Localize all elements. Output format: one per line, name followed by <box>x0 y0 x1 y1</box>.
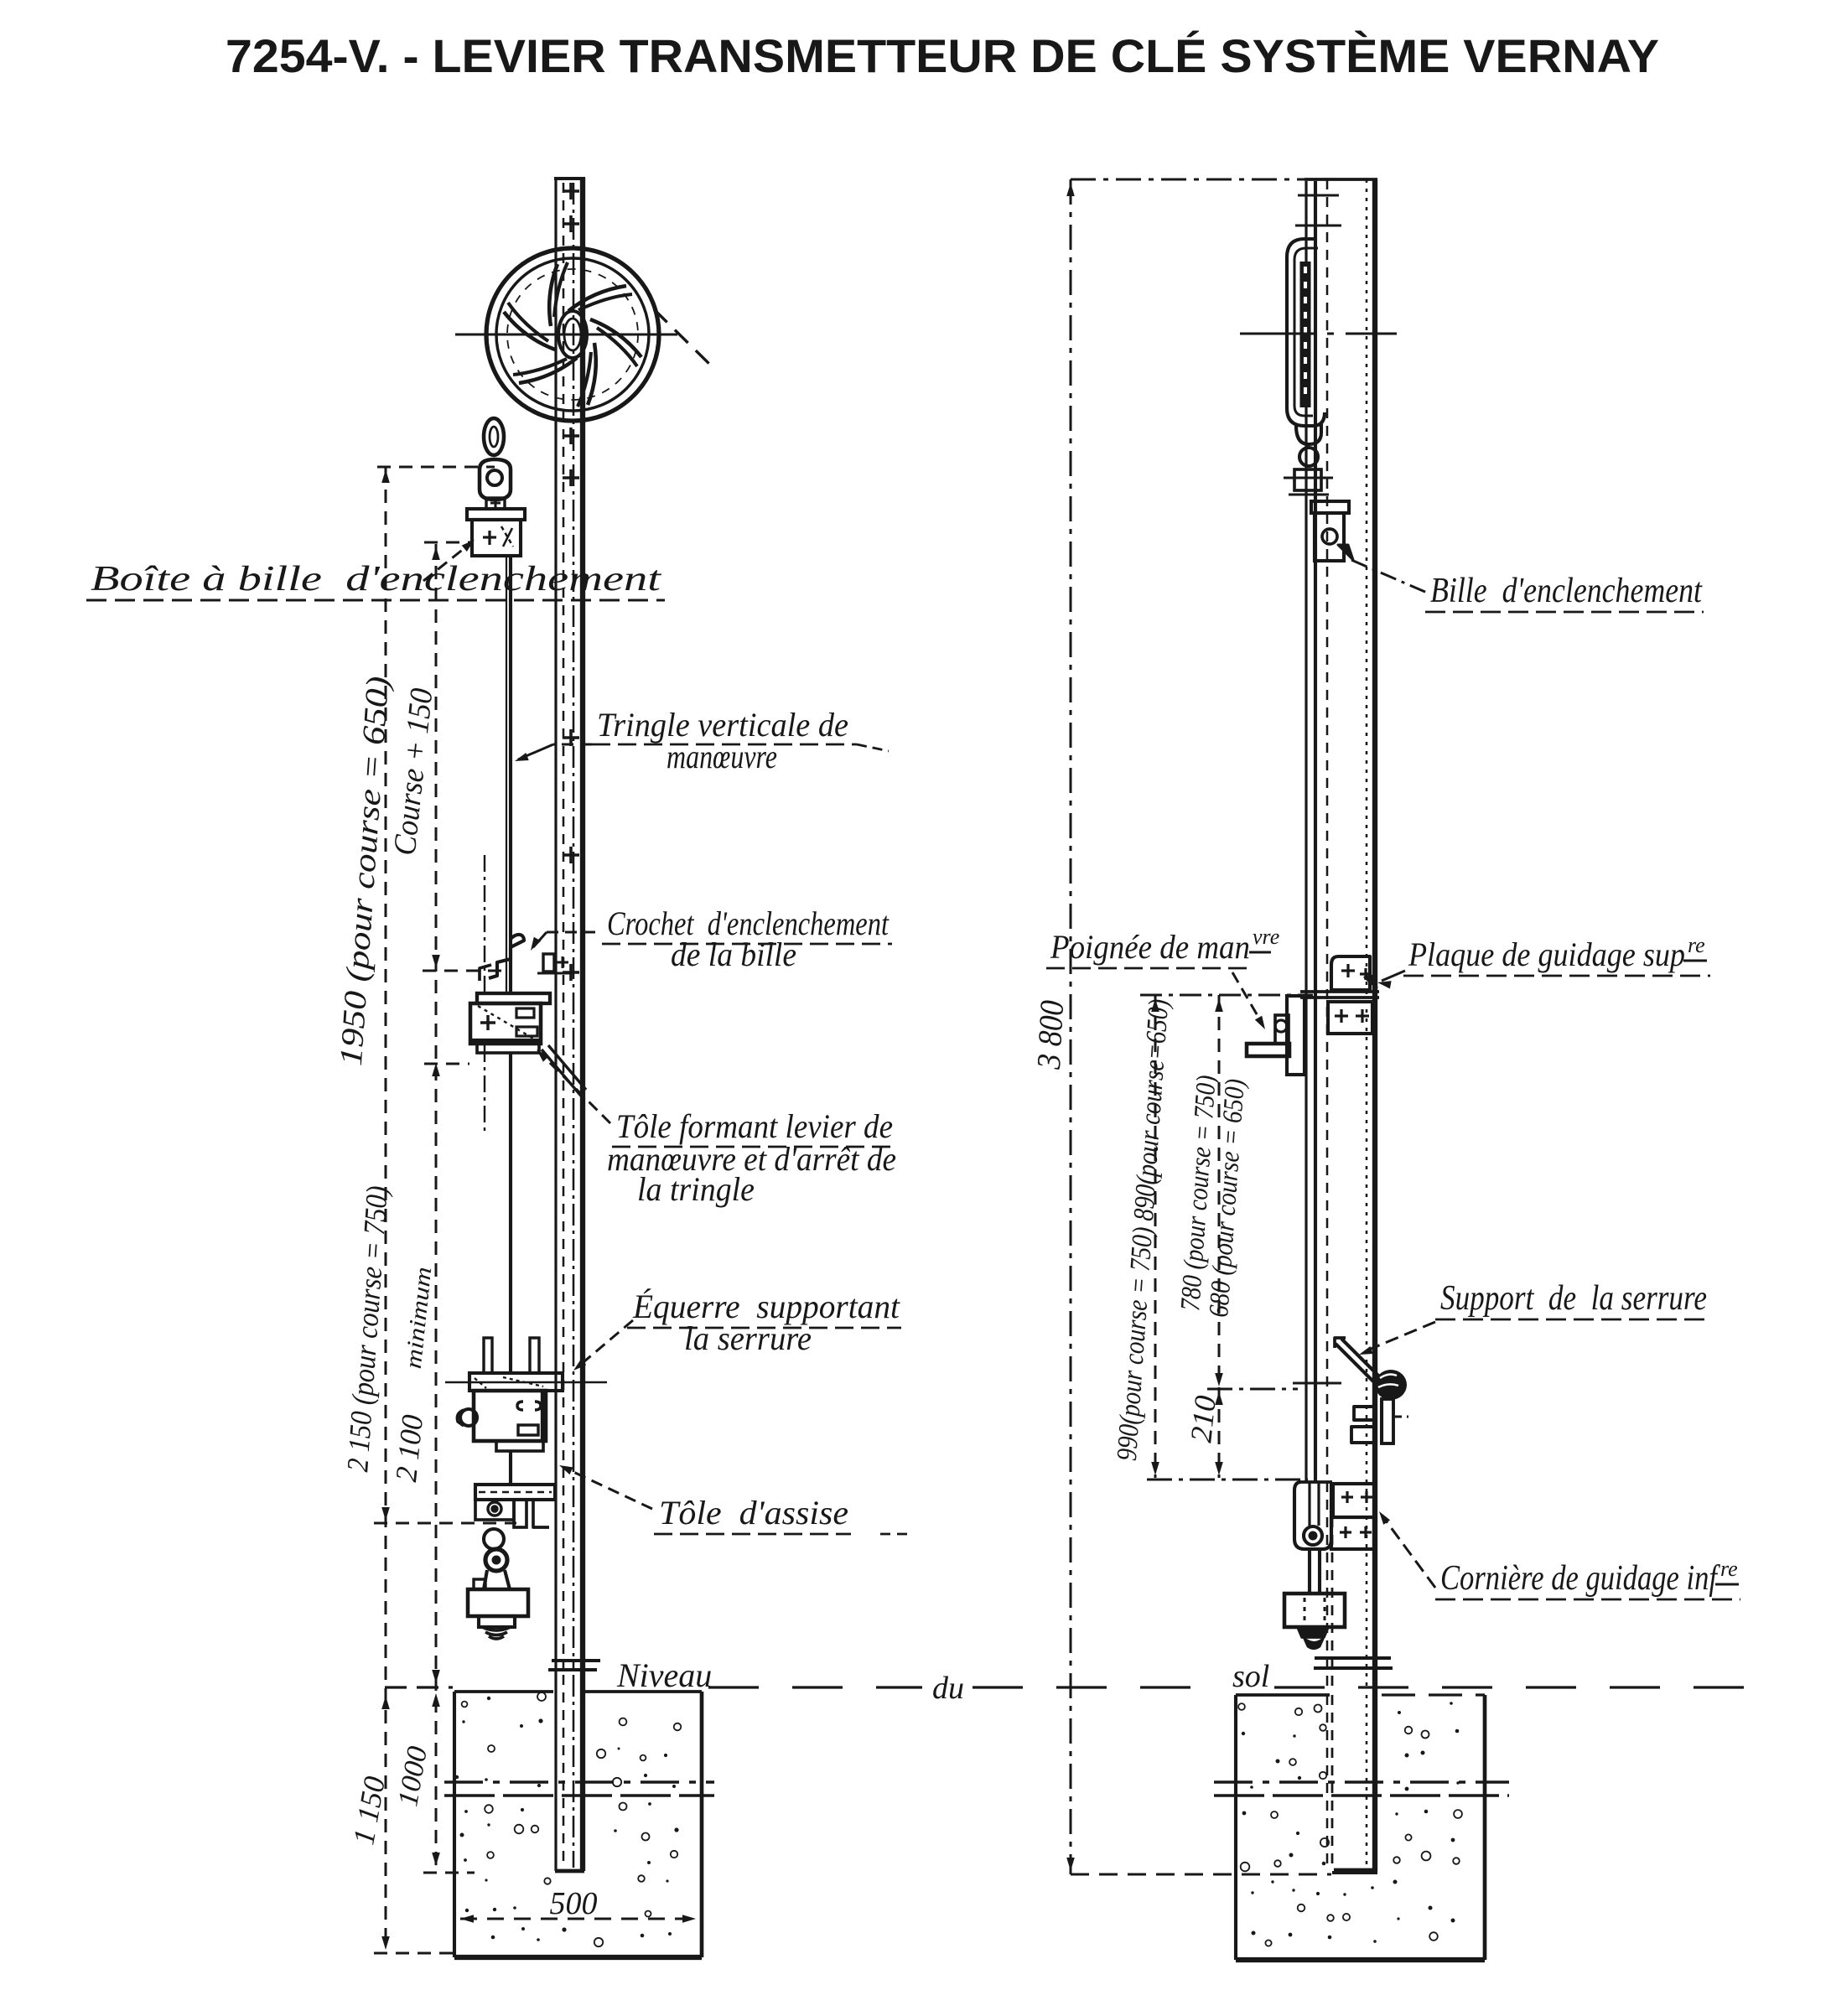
svg-text:Support de la serrure: Support de la serrure <box>1440 1279 1707 1318</box>
svg-text:7254-V. - LEVIER TRANSMETTEUR: 7254-V. - LEVIER TRANSMETTEUR DE CLÉ SYS… <box>226 29 1659 82</box>
svg-text:210: 210 <box>1184 1394 1222 1444</box>
svg-text:2 100: 2 100 <box>389 1413 429 1484</box>
svg-text:sol: sol <box>1232 1659 1269 1694</box>
svg-text:Poignée de man: Poignée de man <box>1050 928 1250 966</box>
svg-text:Plaque de guidage sup: Plaque de guidage sup <box>1408 935 1685 973</box>
svg-text:vre: vre <box>1253 925 1279 949</box>
svg-text:Bille d'enclenchement: Bille d'enclenchement <box>1430 572 1703 610</box>
svg-text:du: du <box>932 1671 964 1706</box>
svg-text:la tringle: la tringle <box>637 1170 755 1208</box>
svg-text:Cornière de guidage inf: Cornière de guidage inf <box>1440 1559 1720 1598</box>
svg-text:la serrure: la serrure <box>684 1319 812 1357</box>
svg-text:de la bille: de la bille <box>671 935 796 973</box>
svg-text:re: re <box>1688 933 1705 957</box>
svg-text:Niveau: Niveau <box>616 1656 712 1694</box>
svg-text:Boîte à bille d'enclenchement: Boîte à bille d'enclenchement <box>91 560 662 599</box>
svg-text:re: re <box>1720 1557 1738 1581</box>
svg-text:Tôle d'assise: Tôle d'assise <box>659 1494 848 1531</box>
svg-text:3 800: 3 800 <box>1030 999 1071 1070</box>
svg-text:500: 500 <box>550 1886 598 1921</box>
